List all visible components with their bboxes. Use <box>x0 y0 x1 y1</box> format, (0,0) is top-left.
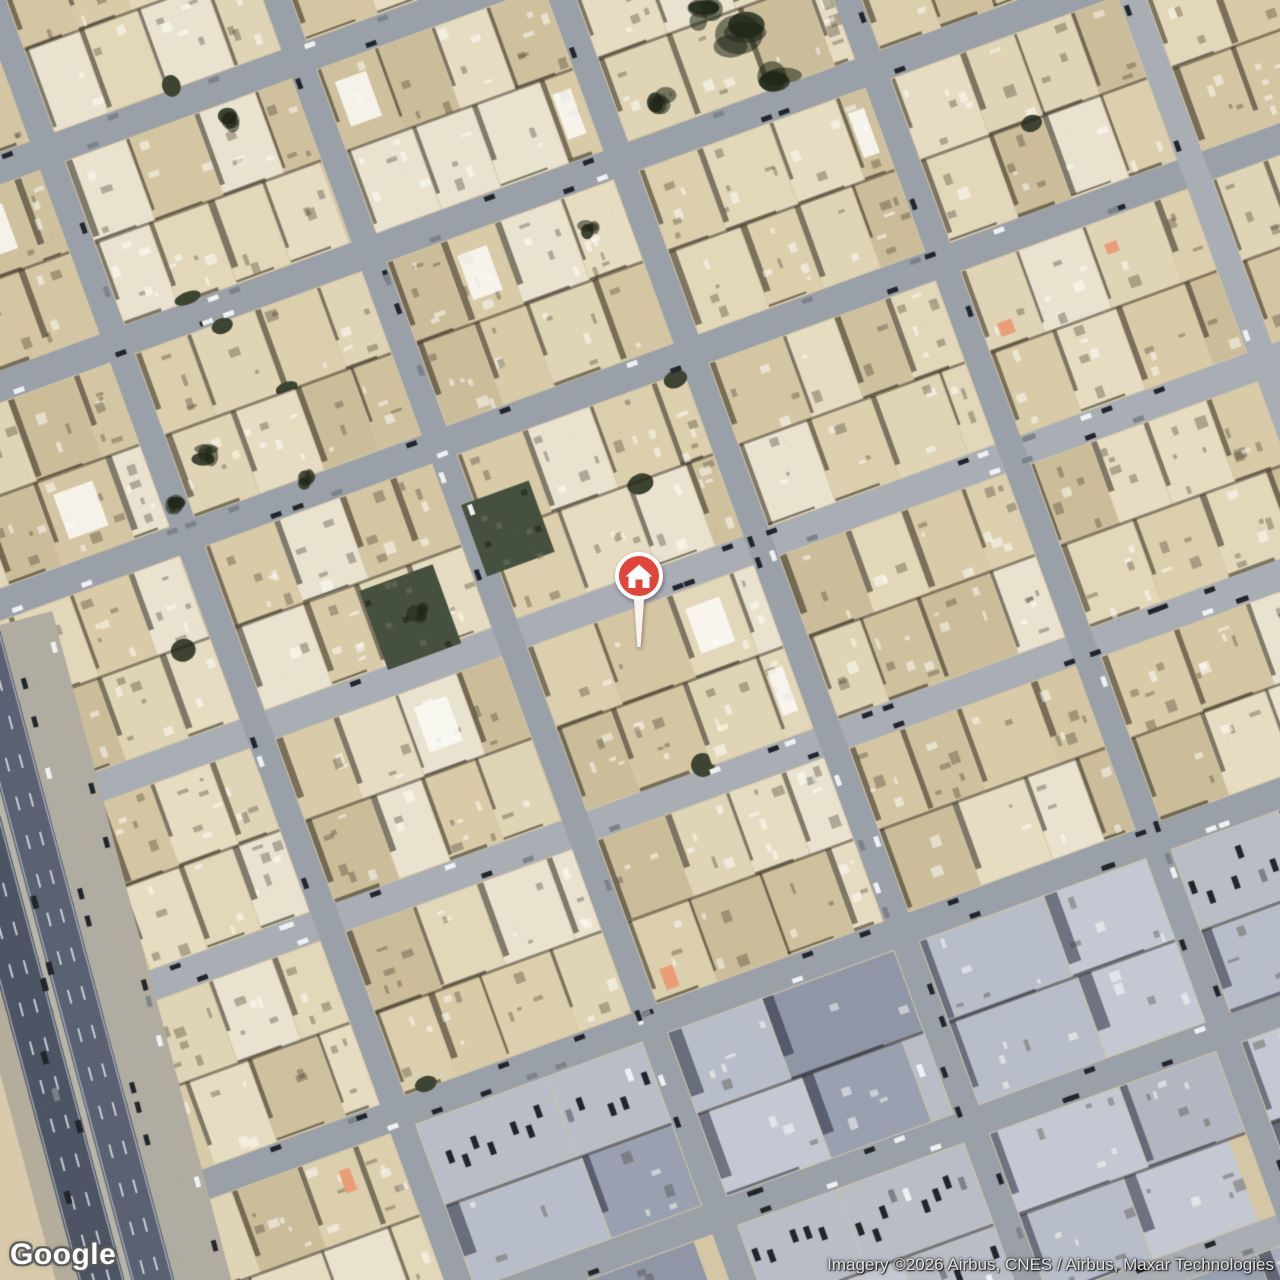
google-logo[interactable]: Google <box>10 1238 116 1272</box>
map-viewport[interactable]: Google Imagery ©2026 Airbus, CNES / Airb… <box>0 0 1280 1280</box>
map-marker-pin[interactable] <box>607 546 671 652</box>
marker-stem <box>634 593 645 647</box>
map-attribution: Imagery ©2026 Airbus, CNES / Airbus, Max… <box>827 1255 1274 1275</box>
